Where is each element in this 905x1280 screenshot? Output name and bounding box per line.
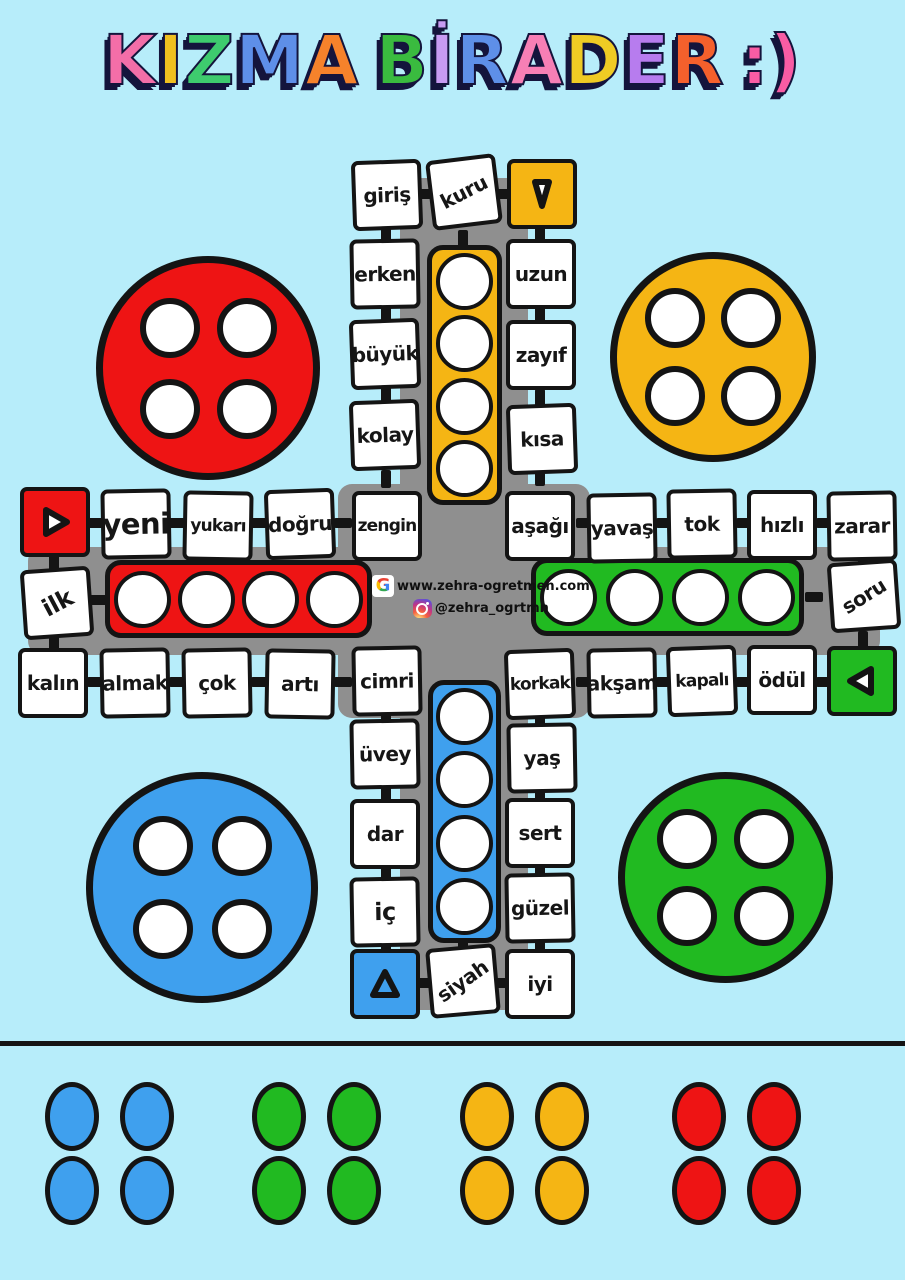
cell-yeni: yeni [100, 488, 171, 559]
cell-label: sert [519, 821, 562, 845]
home-slot [606, 569, 663, 626]
title-letter: Z [184, 24, 235, 100]
cell-label: cimri [360, 669, 414, 694]
cell-kapali: kapalı [666, 645, 738, 717]
cell-odul: ödül [747, 645, 817, 715]
cell-label: erken [354, 261, 416, 286]
title-letter: R [671, 24, 725, 100]
worksheet-page: KIZMABİRADER:) giriş kuru erk [0, 0, 905, 1280]
home-slot [436, 315, 493, 372]
game-piece-yellow [535, 1082, 589, 1151]
home-column-yellow [427, 245, 502, 505]
game-piece-green [327, 1156, 381, 1225]
cell-label: kalın [27, 671, 79, 695]
game-piece-red [747, 1082, 801, 1151]
home-slot [436, 378, 493, 435]
title-letter: İ [429, 24, 456, 100]
left-arrow-icon [844, 663, 880, 699]
cell-uzun: uzun [506, 239, 576, 309]
home-slot [436, 440, 493, 497]
cell-label: yeni [102, 506, 170, 541]
page-title: KIZMABİRADER:) [0, 24, 905, 100]
cell-korkak: korkak [504, 648, 576, 720]
corner-slot [217, 379, 277, 439]
corner-slot [133, 816, 193, 876]
cell-label: hızlı [760, 513, 804, 537]
cell-label: zayıf [516, 343, 567, 367]
title-letter: I [158, 24, 185, 100]
down-arrow-icon [524, 176, 560, 212]
home-slot [306, 571, 363, 628]
cell-label: zengin [358, 516, 417, 536]
cell-label: akşam [587, 670, 658, 695]
title-letter: A [305, 24, 359, 100]
title-letter: A [510, 24, 564, 100]
game-piece-green [327, 1082, 381, 1151]
home-slot [436, 688, 493, 745]
cell-label: çok [198, 671, 236, 696]
cell-label: kısa [520, 426, 564, 452]
cell-uvey: üvey [349, 718, 420, 789]
branding: G www.zehra-ogretmen.com @zehra_ogrtmn [372, 575, 590, 618]
cell-label: iç [374, 898, 396, 926]
corner-slot [645, 288, 705, 348]
game-piece-blue [120, 1082, 174, 1151]
cell-erken: erken [349, 238, 420, 309]
game-piece-green [252, 1082, 306, 1151]
title-letter: R [456, 24, 510, 100]
home-slot [436, 815, 493, 872]
cell-yukari: yukarı [182, 490, 253, 561]
cell-almak: almak [99, 647, 170, 718]
cell-label: yukarı [190, 516, 246, 537]
corner-base-green [618, 772, 833, 983]
title-letter: E [622, 24, 670, 100]
corner-slot [657, 886, 717, 946]
start-square-green [827, 646, 897, 716]
home-column-blue [428, 680, 501, 943]
corner-base-blue [86, 772, 318, 1003]
cell-iyi: iyi [505, 949, 575, 1019]
cell-ic: iç [349, 876, 420, 947]
cell-label: kapalı [675, 670, 729, 692]
instagram-row: @zehra_ogrtmn [413, 599, 549, 618]
corner-slot [734, 809, 794, 869]
cut-line [0, 1041, 905, 1046]
cell-zarar: zarar [826, 490, 897, 561]
game-piece-red [672, 1156, 726, 1225]
corner-slot [217, 298, 277, 358]
cell-kalin: kalın [18, 648, 88, 718]
instagram-icon [413, 599, 432, 618]
cell-kolay: kolay [349, 399, 421, 471]
pieces-blue [45, 1082, 174, 1225]
cell-cok: çok [181, 647, 252, 718]
website-text: www.zehra-ogretmen.com [397, 579, 590, 594]
cell-label: kolay [356, 422, 414, 448]
game-piece-red [672, 1082, 726, 1151]
home-slot [114, 571, 171, 628]
cell-label: üvey [359, 742, 411, 767]
cell-label: uzun [515, 262, 567, 286]
cell-yas: yaş [506, 722, 577, 793]
track-connector [805, 592, 823, 602]
game-piece-yellow [460, 1082, 514, 1151]
cell-soru: soru [827, 559, 902, 634]
cell-label: iyi [527, 972, 552, 996]
corner-slot [734, 886, 794, 946]
cell-label: yavaş [591, 515, 654, 540]
track-connector [334, 518, 352, 528]
title-letter: M [235, 24, 305, 100]
home-slot [242, 571, 299, 628]
cell-label: ödül [758, 668, 805, 692]
cell-dar: dar [350, 799, 420, 869]
home-slot [436, 253, 493, 310]
home-column-red [105, 560, 372, 638]
website-row: G www.zehra-ogretmen.com [372, 575, 590, 597]
corner-base-yellow [610, 252, 816, 462]
cell-buyuk: büyük [349, 318, 421, 390]
right-arrow-icon [37, 504, 73, 540]
cell-cimri: cimri [351, 645, 422, 716]
cell-asagi: aşağı [505, 491, 575, 561]
instagram-lens [416, 603, 428, 615]
corner-slot [657, 809, 717, 869]
cell-giris: giriş [351, 159, 423, 231]
title-letter: D [564, 24, 622, 100]
pieces-red [672, 1082, 801, 1225]
title-letter: K [103, 24, 157, 100]
instagram-handle: @zehra_ogrtmn [435, 601, 549, 616]
corner-slot [140, 298, 200, 358]
game-piece-yellow [535, 1156, 589, 1225]
cell-label: artı [281, 672, 319, 697]
cell-label: aşağı [511, 514, 569, 538]
google-g: G [376, 577, 391, 595]
cell-label: soru [837, 573, 890, 619]
google-icon: G [372, 575, 394, 597]
corner-slot [721, 366, 781, 426]
cell-label: almak [102, 670, 168, 695]
corner-slot [721, 288, 781, 348]
up-arrow-icon [367, 966, 403, 1002]
cell-label: zarar [834, 514, 890, 539]
corner-slot [212, 899, 272, 959]
cell-label: dar [367, 822, 403, 846]
cell-kisa: kısa [506, 403, 578, 475]
cell-label: giriş [363, 182, 411, 208]
cell-guzel: güzel [504, 872, 575, 943]
cell-kuru: kuru [425, 153, 503, 231]
game-piece-blue [45, 1156, 99, 1225]
cell-label: tok [684, 512, 720, 537]
game-piece-red [747, 1156, 801, 1225]
home-slot [436, 878, 493, 935]
cell-zengin: zengin [352, 491, 422, 561]
track-connector [334, 677, 352, 687]
corner-slot [645, 366, 705, 426]
game-piece-green [252, 1156, 306, 1225]
corner-slot [140, 379, 200, 439]
cell-ilk: ilk [20, 566, 95, 641]
home-slot [672, 569, 729, 626]
game-piece-blue [45, 1082, 99, 1151]
game-piece-yellow [460, 1156, 514, 1225]
home-slot [178, 571, 235, 628]
corner-slot [212, 816, 272, 876]
track-connector [381, 470, 391, 488]
cell-label: doğru [268, 511, 333, 537]
start-square-red [20, 487, 90, 557]
cell-zayif: zayıf [506, 320, 576, 390]
pieces-green [252, 1082, 381, 1225]
pieces-yellow [460, 1082, 589, 1225]
title-letter: B [375, 24, 429, 100]
corner-base-red [96, 256, 320, 480]
home-slot [738, 569, 795, 626]
cell-label: güzel [511, 895, 570, 920]
corner-slot [133, 899, 193, 959]
cell-label: büyük [351, 341, 418, 367]
cell-label: yaş [523, 746, 560, 771]
cell-label: ilk [37, 583, 77, 622]
cell-label: kuru [436, 170, 491, 214]
cell-label: siyah [433, 955, 493, 1007]
start-square-blue [350, 949, 420, 1019]
home-slot [436, 751, 493, 808]
cell-label: korkak [510, 673, 571, 695]
cell-hizli: hızlı [747, 490, 817, 560]
cell-sert: sert [505, 798, 575, 868]
game-piece-blue [120, 1156, 174, 1225]
cell-arti: artı [264, 648, 335, 719]
cell-tok: tok [666, 488, 737, 559]
cell-siyah: siyah [425, 943, 501, 1019]
cell-aksam: akşam [586, 647, 657, 718]
title-letter: :) [741, 24, 802, 100]
cell-dogru: doğru [264, 488, 336, 560]
cell-yavas: yavaş [586, 492, 657, 563]
start-square-yellow [507, 159, 577, 229]
